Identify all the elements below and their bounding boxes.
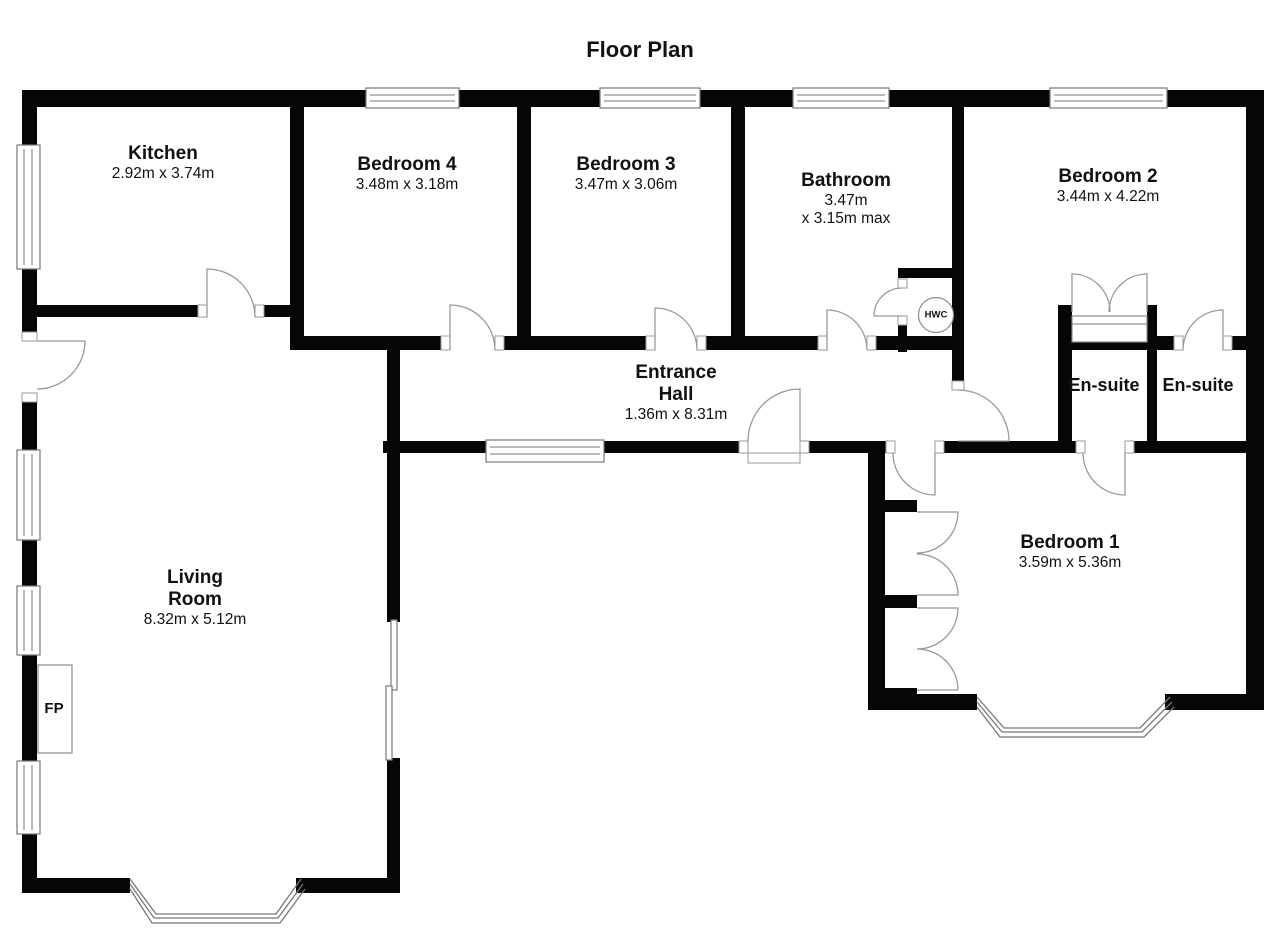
room-dims: 3.48m x 3.18m — [356, 176, 459, 194]
room-dims: 2.92m x 3.74m — [112, 165, 215, 183]
hot-water-cylinder-label: HWC — [925, 310, 948, 321]
room-name-line2: Room — [144, 589, 247, 611]
room-dims: 3.47m x 3.06m — [575, 176, 678, 194]
kitchen-window — [17, 145, 40, 269]
wall-living-right-lower — [387, 758, 400, 893]
bedroom3-door — [655, 308, 697, 350]
room-name: Bedroom 2 — [1057, 166, 1160, 188]
wall-ensuite-left — [1058, 305, 1072, 441]
closet1-door-bottom — [917, 554, 958, 595]
bedroom2-door — [958, 390, 1009, 441]
wardrobe-box — [1072, 316, 1147, 342]
room-name-line1: Entrance — [625, 362, 728, 384]
room-label-bedroom2: Bedroom 2 3.44m x 4.22m — [1057, 166, 1160, 206]
floor-plan-drawing — [0, 0, 1280, 930]
room-label-kitchen: Kitchen 2.92m x 3.74m — [112, 143, 215, 183]
room-name: En-suite — [1068, 374, 1139, 396]
ensuite-left-door — [1083, 453, 1125, 495]
bay-windows — [130, 697, 1174, 923]
room-label-living-room: Living Room 8.32m x 5.12m — [144, 567, 247, 629]
hall-window — [486, 440, 604, 462]
bathroom-window — [793, 88, 889, 108]
ensuite-right-door — [1183, 310, 1223, 350]
room-dims: 8.32m x 5.12m — [144, 611, 247, 629]
room-label-ensuite-left: En-suite — [1068, 374, 1139, 396]
wardrobe-door-left — [1072, 274, 1110, 312]
room-dims: 3.44m x 4.22m — [1057, 188, 1160, 206]
sliding-door — [386, 620, 397, 760]
room-label-bedroom1: Bedroom 1 3.59m x 5.36m — [1019, 532, 1122, 572]
wall-kitchen-bedroom4 — [290, 107, 304, 336]
bedroom4-door — [450, 305, 495, 350]
room-name-line1: Living — [144, 567, 247, 589]
closet1-door-top — [917, 512, 958, 553]
kitchen-door — [207, 269, 255, 317]
bedroom1-bay-window — [977, 697, 1174, 737]
wall-living-bottom-left — [22, 878, 130, 893]
wall-bedroom1-left — [868, 441, 885, 694]
room-label-ensuite-right: En-suite — [1162, 374, 1233, 396]
room-label-bathroom: Bathroom 3.47m x 3.15m max — [801, 170, 891, 228]
room-name: En-suite — [1162, 374, 1233, 396]
entry-door — [37, 341, 85, 389]
fireplace-label: FP — [44, 700, 63, 717]
room-name: Bathroom — [801, 170, 891, 192]
bathroom-door — [827, 310, 867, 350]
living-window-2 — [17, 586, 40, 655]
fixtures — [38, 298, 1147, 754]
room-dims: 1.36m x 8.31m — [625, 406, 728, 424]
bedroom3-window — [600, 88, 700, 108]
living-room-bay-window — [130, 879, 305, 923]
wall-bathroom-bedroom2 — [952, 107, 964, 390]
front-door — [748, 389, 800, 441]
room-label-bedroom3: Bedroom 3 3.47m x 3.06m — [575, 154, 678, 194]
wall-right — [1246, 90, 1264, 710]
room-name: Bedroom 3 — [575, 154, 678, 176]
closet2-door-top — [917, 608, 958, 649]
room-name: Kitchen — [112, 143, 215, 165]
room-name-line2: Hall — [625, 384, 728, 406]
living-window-3 — [17, 761, 40, 834]
wall-bedroom1-bottom-left — [868, 694, 977, 710]
room-dims: 3.59m x 5.36m — [1019, 554, 1122, 572]
room-dims-2: x 3.15m max — [801, 210, 891, 228]
walls — [22, 90, 1264, 893]
room-dims: 3.47m — [801, 192, 891, 210]
bedroom2-window — [1050, 88, 1167, 108]
wardrobe-door-right — [1109, 274, 1147, 312]
page-title: Floor Plan — [586, 37, 694, 63]
room-label-bedroom4: Bedroom 4 3.48m x 3.18m — [356, 154, 459, 194]
wall-ensuite-divider — [1147, 305, 1157, 441]
wall-bedroom3-bathroom — [731, 107, 745, 350]
bedroom4-window — [366, 88, 459, 108]
room-name: Bedroom 4 — [356, 154, 459, 176]
wall-living-right-upper — [387, 340, 400, 622]
front-door-threshold — [748, 453, 800, 463]
closet2-door-bottom — [917, 649, 958, 690]
bedroom1-door — [893, 453, 935, 495]
room-name: Bedroom 1 — [1019, 532, 1122, 554]
hwc-closet-door — [874, 288, 902, 316]
wall-bedroom4-bedroom3 — [517, 107, 531, 350]
room-label-entrance-hall: Entrance Hall 1.36m x 8.31m — [625, 362, 728, 424]
floor-plan: Floor Plan Kitchen 2.92m x 3.74m Bedroom… — [0, 0, 1280, 930]
living-window-1 — [17, 450, 40, 540]
wall-living-bottom-right — [296, 878, 400, 893]
wall-left — [22, 90, 37, 147]
